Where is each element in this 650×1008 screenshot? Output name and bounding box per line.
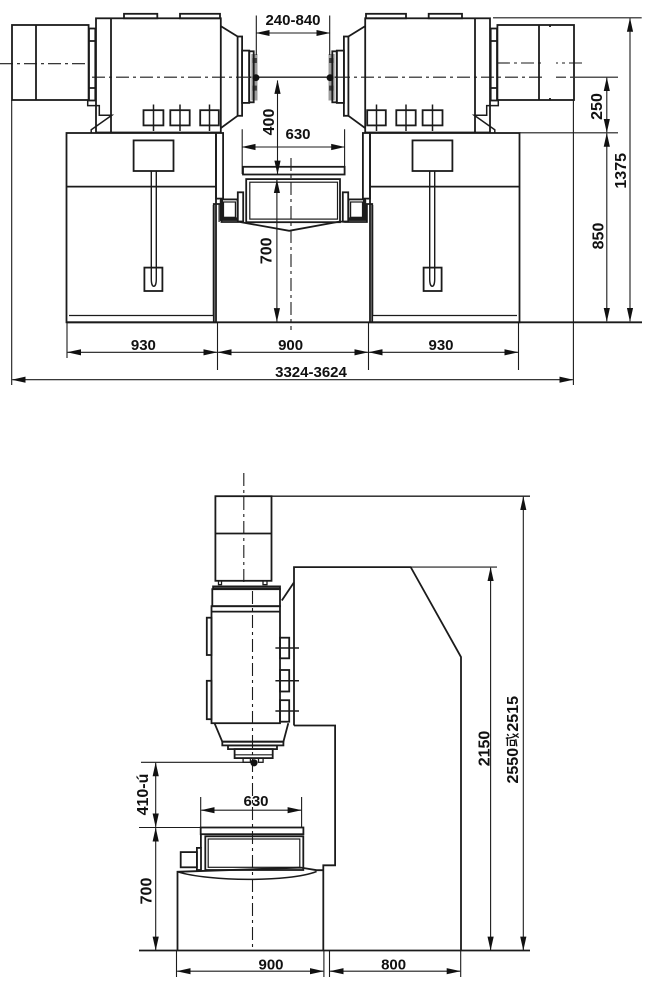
svg-text:800: 800 (381, 957, 406, 974)
svg-text:2550: 2550 (505, 748, 522, 784)
svg-text:930: 930 (428, 337, 453, 354)
svg-text:3324-3624: 3324-3624 (275, 364, 347, 381)
svg-text:850: 850 (591, 223, 608, 250)
svg-text:630: 630 (243, 793, 268, 810)
svg-text:930: 930 (131, 337, 156, 354)
svg-text:400: 400 (261, 109, 278, 136)
svg-text:700: 700 (139, 878, 156, 905)
svg-text:2150: 2150 (477, 731, 494, 767)
svg-text:250: 250 (589, 93, 606, 120)
svg-text:410-ú: 410-ú (135, 774, 152, 816)
svg-text:700: 700 (259, 237, 276, 264)
svg-text:900: 900 (258, 957, 283, 974)
svg-text:240-840: 240-840 (265, 12, 320, 29)
svg-text:900: 900 (278, 337, 303, 354)
svg-text:2515: 2515 (505, 696, 522, 732)
svg-text:630: 630 (285, 126, 310, 143)
svg-text:1375: 1375 (613, 153, 630, 189)
